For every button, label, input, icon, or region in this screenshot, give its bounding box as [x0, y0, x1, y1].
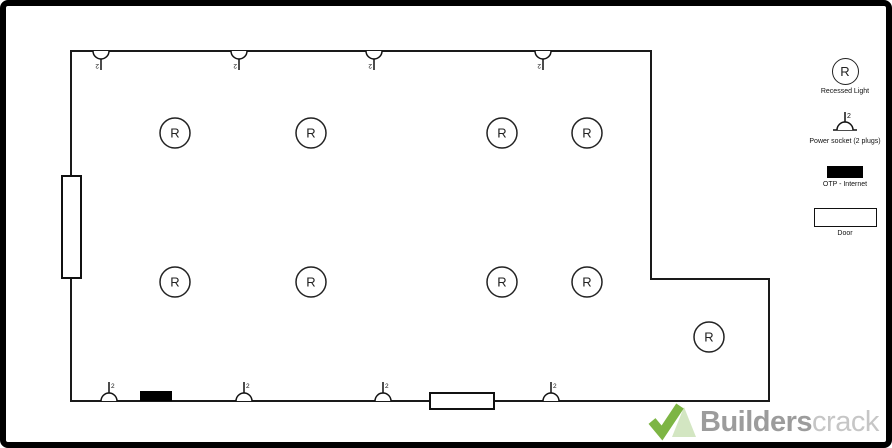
- door-symbol: [62, 176, 81, 278]
- recessed-light-icon-letter: R: [840, 64, 849, 79]
- recessed-light-symbol: R: [487, 118, 517, 148]
- power-socket-symbol: 2: [366, 51, 382, 70]
- svg-text:2: 2: [246, 383, 250, 390]
- builderscrack-logo-icon: [646, 401, 700, 443]
- svg-text:R: R: [497, 275, 506, 290]
- power-socket-symbol: 2: [535, 51, 551, 70]
- power-socket-symbol: 2: [543, 382, 559, 401]
- legend-label-power-socket: Power socket (2 plugs): [809, 138, 880, 146]
- svg-text:R: R: [704, 330, 713, 345]
- svg-text:2: 2: [111, 383, 115, 390]
- power-socket-symbol: 2: [101, 382, 117, 401]
- builderscrack-watermark: Builderscrack: [646, 401, 879, 443]
- recessed-light-symbol: R: [160, 267, 190, 297]
- recessed-light-symbol: R: [572, 118, 602, 148]
- svg-text:R: R: [582, 275, 591, 290]
- recessed-light-symbol: R: [296, 267, 326, 297]
- svg-text:2: 2: [368, 62, 372, 69]
- power-socket-symbol: 2: [93, 51, 109, 70]
- svg-text:2: 2: [95, 62, 99, 69]
- floor-plan: 22222222RRRRRRRRR: [6, 6, 892, 448]
- internet-point-symbol: [140, 391, 172, 401]
- svg-text:R: R: [170, 275, 179, 290]
- svg-text:R: R: [306, 275, 315, 290]
- wordmark-light: crack: [812, 406, 879, 438]
- recessed-light-symbol: R: [160, 118, 190, 148]
- door-symbol: [430, 393, 494, 409]
- wordmark-bold: Builders: [700, 406, 812, 438]
- power-socket-symbol: 2: [231, 51, 247, 70]
- legend-label-door: Door: [837, 230, 852, 238]
- room-walls: [71, 51, 769, 401]
- plan-frame: 22222222RRRRRRRRR R Recessed Light 2 Pow…: [0, 0, 892, 448]
- svg-text:2: 2: [385, 383, 389, 390]
- internet-point-icon: [827, 166, 863, 178]
- svg-text:R: R: [306, 126, 315, 141]
- svg-text:2: 2: [537, 62, 541, 69]
- legend-label-internet: OTP - Internet: [823, 181, 867, 189]
- power-socket-icon-count: 2: [847, 113, 851, 120]
- builderscrack-wordmark: Builderscrack: [700, 401, 879, 443]
- recessed-light-symbol: R: [694, 322, 724, 352]
- legend: R Recessed Light 2 Power socket (2 plugs…: [803, 58, 887, 238]
- svg-text:2: 2: [553, 383, 557, 390]
- recessed-light-symbol: R: [296, 118, 326, 148]
- recessed-light-icon: R: [832, 58, 859, 85]
- recessed-light-symbol: R: [572, 267, 602, 297]
- recessed-light-symbol: R: [487, 267, 517, 297]
- power-socket-symbol: 2: [375, 382, 391, 401]
- svg-text:R: R: [170, 126, 179, 141]
- power-socket-icon: 2: [828, 109, 862, 135]
- svg-text:R: R: [497, 126, 506, 141]
- power-socket-symbol: 2: [236, 382, 252, 401]
- door-icon: [814, 208, 877, 227]
- svg-text:2: 2: [233, 62, 237, 69]
- legend-label-recessed-light: Recessed Light: [821, 88, 869, 96]
- svg-text:R: R: [582, 126, 591, 141]
